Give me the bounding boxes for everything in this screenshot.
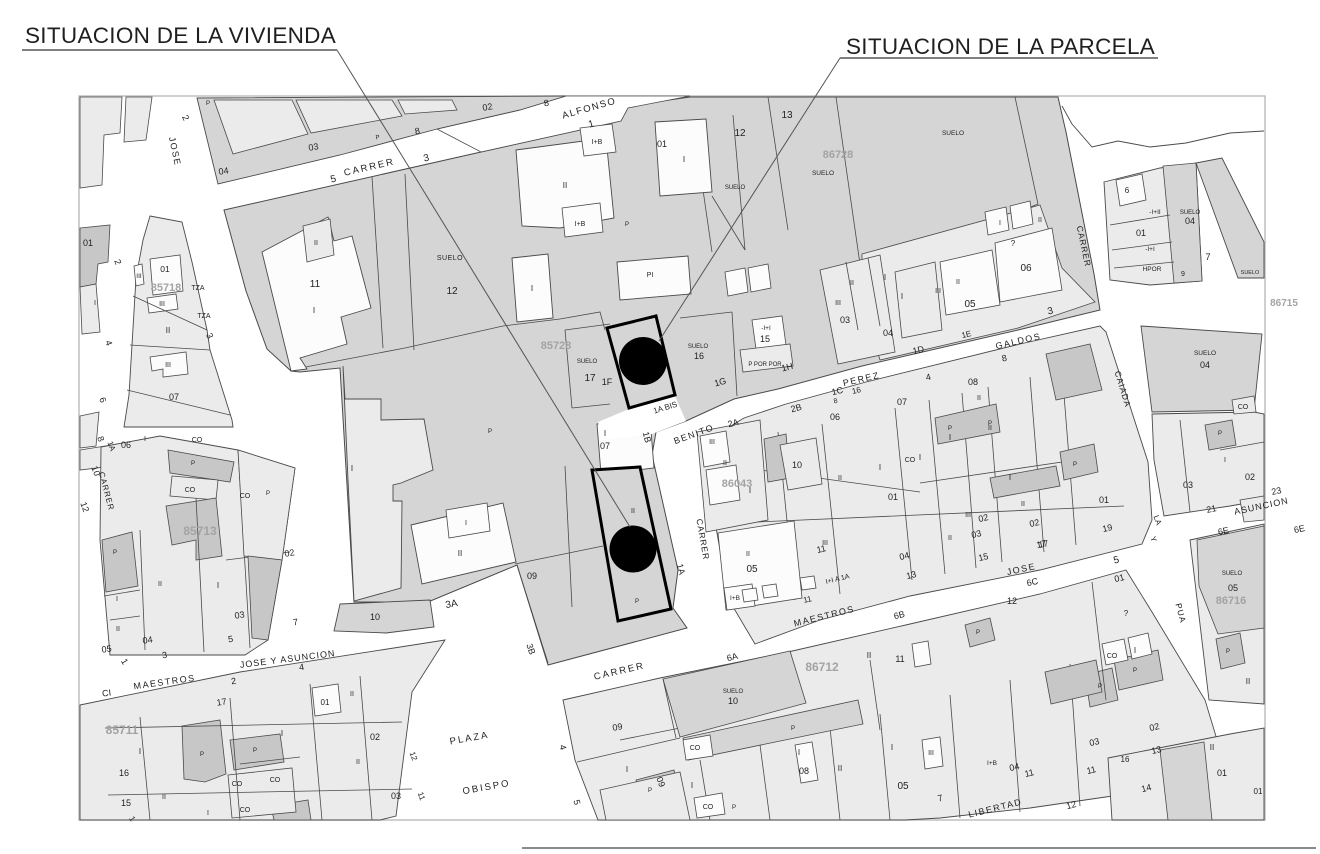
svg-text:01: 01 bbox=[1099, 495, 1109, 505]
svg-text:III: III bbox=[709, 439, 715, 446]
svg-text:I: I bbox=[94, 300, 96, 307]
svg-text:SUELO: SUELO bbox=[577, 359, 598, 365]
svg-text:10: 10 bbox=[792, 460, 802, 470]
svg-text:06: 06 bbox=[121, 440, 131, 450]
svg-text:I: I bbox=[207, 810, 209, 817]
svg-text:II: II bbox=[1246, 677, 1250, 686]
svg-text:P: P bbox=[1073, 462, 1077, 468]
svg-text:CO: CO bbox=[690, 745, 701, 752]
svg-text:86043: 86043 bbox=[722, 478, 753, 490]
svg-text:86712: 86712 bbox=[805, 660, 839, 674]
svg-text:04: 04 bbox=[1200, 360, 1210, 370]
svg-text:SUELO: SUELO bbox=[725, 185, 746, 191]
svg-text:P: P bbox=[732, 805, 736, 811]
svg-text:7: 7 bbox=[1205, 252, 1210, 262]
svg-text:03: 03 bbox=[840, 315, 850, 325]
svg-text:05: 05 bbox=[1228, 583, 1238, 593]
svg-text:07: 07 bbox=[600, 441, 610, 451]
svg-text:12: 12 bbox=[734, 128, 746, 139]
svg-text:II: II bbox=[948, 535, 952, 542]
svg-text:85713: 85713 bbox=[183, 524, 217, 538]
svg-text:P: P bbox=[266, 491, 270, 497]
svg-text:05: 05 bbox=[746, 564, 758, 575]
svg-text:CO: CO bbox=[185, 487, 196, 494]
svg-text:I: I bbox=[901, 292, 903, 301]
svg-text:SUELO: SUELO bbox=[1222, 571, 1243, 577]
svg-text:03: 03 bbox=[391, 791, 401, 801]
svg-text:03: 03 bbox=[234, 609, 245, 620]
svg-text:CO: CO bbox=[1238, 404, 1249, 411]
svg-text:?: ? bbox=[1011, 239, 1016, 248]
svg-text:CO: CO bbox=[703, 804, 714, 811]
svg-text:III: III bbox=[928, 750, 934, 757]
svg-text:23: 23 bbox=[1270, 485, 1282, 497]
svg-text:I: I bbox=[919, 453, 921, 462]
svg-text:I+B: I+B bbox=[730, 595, 740, 602]
svg-text:02: 02 bbox=[284, 547, 296, 559]
svg-text:P: P bbox=[206, 101, 210, 107]
svg-text:01: 01 bbox=[1136, 228, 1146, 238]
svg-text:II: II bbox=[458, 549, 462, 558]
svg-text:01: 01 bbox=[888, 492, 898, 502]
svg-text:CO: CO bbox=[270, 777, 281, 784]
svg-text:I: I bbox=[884, 273, 886, 282]
svg-text:I: I bbox=[949, 433, 951, 442]
svg-text:II: II bbox=[956, 279, 960, 286]
svg-text:08: 08 bbox=[968, 377, 978, 387]
svg-text:86715: 86715 bbox=[1270, 298, 1298, 309]
svg-text:II: II bbox=[563, 181, 567, 190]
svg-text:02: 02 bbox=[482, 101, 494, 113]
svg-text:16: 16 bbox=[119, 768, 129, 778]
svg-text:P: P bbox=[948, 426, 952, 432]
svg-text:TZA: TZA bbox=[197, 313, 211, 320]
svg-text:I: I bbox=[1224, 457, 1226, 464]
svg-text:I+B: I+B bbox=[987, 760, 997, 767]
svg-text:III: III bbox=[165, 362, 171, 369]
svg-text:SUELO: SUELO bbox=[942, 130, 964, 137]
svg-text:I: I bbox=[798, 748, 800, 757]
svg-text:10: 10 bbox=[370, 612, 380, 622]
svg-text:86728: 86728 bbox=[823, 149, 854, 161]
svg-text:01: 01 bbox=[160, 264, 170, 274]
svg-text:10: 10 bbox=[728, 696, 738, 706]
svg-text:07: 07 bbox=[169, 392, 179, 402]
svg-text:III: III bbox=[136, 273, 142, 280]
svg-text:I: I bbox=[626, 765, 628, 774]
svg-text:SUELO: SUELO bbox=[437, 255, 463, 262]
svg-text:I: I bbox=[116, 596, 118, 603]
svg-text:P: P bbox=[488, 429, 492, 435]
svg-text:02: 02 bbox=[370, 732, 380, 742]
svg-text:I: I bbox=[749, 486, 751, 495]
svg-text:II: II bbox=[838, 764, 842, 773]
svg-text:9: 9 bbox=[1181, 271, 1185, 278]
svg-text:I: I bbox=[1009, 473, 1011, 482]
svg-text:P: P bbox=[976, 630, 980, 636]
svg-text:P: P bbox=[200, 752, 204, 758]
svg-text:SITUACION DE LA VIVIENDA: SITUACION DE LA VIVIENDA bbox=[25, 23, 336, 48]
svg-text:04: 04 bbox=[1185, 216, 1195, 226]
svg-text:85728: 85728 bbox=[541, 340, 572, 352]
svg-text:II: II bbox=[850, 280, 854, 287]
svg-text:II: II bbox=[1210, 743, 1214, 752]
svg-text:06: 06 bbox=[1020, 263, 1032, 274]
svg-text:II: II bbox=[116, 626, 120, 633]
svg-text:SUELO: SUELO bbox=[1241, 270, 1260, 276]
svg-text:I: I bbox=[281, 729, 283, 738]
svg-text:1F: 1F bbox=[602, 377, 613, 387]
svg-text:P: P bbox=[1218, 431, 1222, 437]
svg-text:?: ? bbox=[1124, 609, 1129, 618]
svg-text:02: 02 bbox=[1028, 517, 1040, 529]
svg-text:I: I bbox=[144, 436, 146, 443]
svg-text:03: 03 bbox=[1183, 480, 1193, 490]
svg-text:P: P bbox=[113, 550, 117, 556]
svg-text:3A: 3A bbox=[445, 598, 459, 611]
svg-text:I+B: I+B bbox=[575, 221, 586, 228]
svg-text:I: I bbox=[683, 155, 685, 164]
svg-text:P: P bbox=[253, 748, 257, 754]
svg-text:P: P bbox=[625, 222, 629, 228]
svg-text:17: 17 bbox=[1037, 538, 1049, 550]
svg-text:01: 01 bbox=[1217, 768, 1227, 778]
svg-text:09: 09 bbox=[612, 721, 624, 733]
svg-text:SUELO: SUELO bbox=[1194, 350, 1216, 357]
svg-text:II: II bbox=[158, 581, 162, 588]
svg-text:CO: CO bbox=[232, 781, 243, 788]
svg-text:04: 04 bbox=[218, 165, 229, 176]
svg-text:II: II bbox=[166, 326, 170, 335]
svg-text:21: 21 bbox=[1205, 503, 1217, 515]
svg-text:I: I bbox=[999, 220, 1001, 227]
svg-text:85718: 85718 bbox=[151, 282, 182, 294]
svg-text:III: III bbox=[822, 540, 828, 547]
svg-text:II: II bbox=[838, 475, 842, 482]
svg-text:85711: 85711 bbox=[106, 723, 139, 737]
svg-text:15: 15 bbox=[760, 334, 770, 344]
svg-text:I: I bbox=[879, 463, 881, 472]
svg-text:I: I bbox=[139, 747, 141, 756]
svg-text:I: I bbox=[465, 520, 467, 527]
svg-text:SITUACION DE LA PARCELA: SITUACION DE LA PARCELA bbox=[846, 34, 1155, 59]
svg-text:16: 16 bbox=[1121, 755, 1130, 764]
svg-text:CO: CO bbox=[240, 807, 251, 814]
svg-text:09: 09 bbox=[527, 571, 537, 581]
svg-text:01: 01 bbox=[321, 698, 330, 707]
svg-text:I: I bbox=[891, 743, 893, 752]
svg-text:CO: CO bbox=[192, 437, 203, 444]
svg-text:II: II bbox=[746, 551, 750, 558]
svg-text:08: 08 bbox=[799, 766, 809, 776]
svg-text:CO: CO bbox=[240, 493, 251, 500]
svg-text:I+B: I+B bbox=[592, 139, 603, 146]
svg-text:13: 13 bbox=[781, 110, 793, 121]
svg-text:P: P bbox=[191, 461, 195, 467]
svg-text:I: I bbox=[1134, 646, 1136, 655]
svg-text:II: II bbox=[356, 759, 360, 766]
svg-text:II: II bbox=[867, 651, 871, 660]
svg-text:II: II bbox=[1021, 501, 1025, 508]
svg-text:II: II bbox=[350, 691, 354, 698]
svg-text:-I+I: -I+I bbox=[1145, 246, 1155, 253]
svg-text:III: III bbox=[965, 512, 971, 519]
svg-text:01: 01 bbox=[1254, 787, 1263, 796]
svg-text:6: 6 bbox=[1125, 186, 1130, 195]
svg-text:CI: CI bbox=[101, 687, 111, 698]
svg-text:11: 11 bbox=[895, 654, 904, 664]
svg-text:05: 05 bbox=[964, 299, 976, 310]
svg-text:SUELO: SUELO bbox=[688, 344, 709, 350]
svg-text:SUELO: SUELO bbox=[723, 689, 744, 695]
svg-text:05: 05 bbox=[897, 781, 909, 792]
svg-text:16: 16 bbox=[694, 351, 704, 361]
svg-text:III: III bbox=[835, 300, 841, 307]
svg-text:II: II bbox=[723, 460, 727, 467]
svg-text:03: 03 bbox=[308, 141, 320, 153]
svg-text:II: II bbox=[977, 395, 981, 402]
svg-text:P: P bbox=[1133, 668, 1137, 674]
svg-text:01: 01 bbox=[657, 139, 667, 149]
svg-text:I: I bbox=[313, 306, 315, 315]
svg-text:15: 15 bbox=[121, 798, 131, 808]
svg-text:II: II bbox=[631, 508, 635, 515]
svg-text:III: III bbox=[935, 288, 941, 295]
svg-text:02: 02 bbox=[1245, 472, 1255, 482]
svg-text:III: III bbox=[159, 301, 165, 308]
svg-text:I: I bbox=[217, 581, 219, 590]
svg-text:-I+II: -I+II bbox=[1149, 209, 1161, 216]
svg-text:I: I bbox=[351, 464, 353, 473]
svg-text:P: P bbox=[791, 726, 795, 732]
svg-text:6E: 6E bbox=[1293, 523, 1306, 535]
svg-text:CO: CO bbox=[905, 457, 916, 464]
svg-text:05: 05 bbox=[101, 643, 112, 654]
svg-text:P: P bbox=[1226, 649, 1230, 655]
svg-text:P: P bbox=[635, 599, 639, 605]
svg-text:CO: CO bbox=[1107, 653, 1118, 660]
svg-text:17: 17 bbox=[584, 373, 596, 384]
svg-text:II: II bbox=[162, 794, 166, 801]
svg-text:-I+I: -I+I bbox=[761, 325, 771, 332]
svg-text:12: 12 bbox=[1007, 596, 1017, 606]
svg-text:04: 04 bbox=[883, 328, 893, 338]
svg-text:I: I bbox=[531, 284, 533, 293]
svg-text:TZA: TZA bbox=[191, 285, 205, 292]
svg-text:I: I bbox=[604, 429, 606, 438]
svg-text:HPOR: HPOR bbox=[1143, 266, 1162, 273]
svg-text:17: 17 bbox=[216, 696, 227, 707]
svg-text:II: II bbox=[1038, 217, 1042, 224]
svg-text:PI: PI bbox=[647, 272, 654, 279]
svg-text:86716: 86716 bbox=[1216, 595, 1247, 607]
svg-text:01: 01 bbox=[83, 238, 93, 248]
svg-text:P: P bbox=[1098, 684, 1102, 690]
svg-text:07: 07 bbox=[897, 397, 907, 407]
svg-text:II: II bbox=[314, 240, 318, 247]
svg-text:12: 12 bbox=[446, 286, 458, 297]
svg-text:11: 11 bbox=[310, 279, 321, 290]
svg-text:P: P bbox=[988, 421, 992, 427]
svg-text:SUELO: SUELO bbox=[812, 170, 834, 177]
svg-text:06: 06 bbox=[830, 412, 840, 422]
svg-text:04: 04 bbox=[142, 634, 153, 645]
svg-text:P POR POR: P POR POR bbox=[748, 362, 782, 368]
svg-text:P: P bbox=[648, 788, 652, 794]
svg-text:I: I bbox=[691, 781, 693, 790]
